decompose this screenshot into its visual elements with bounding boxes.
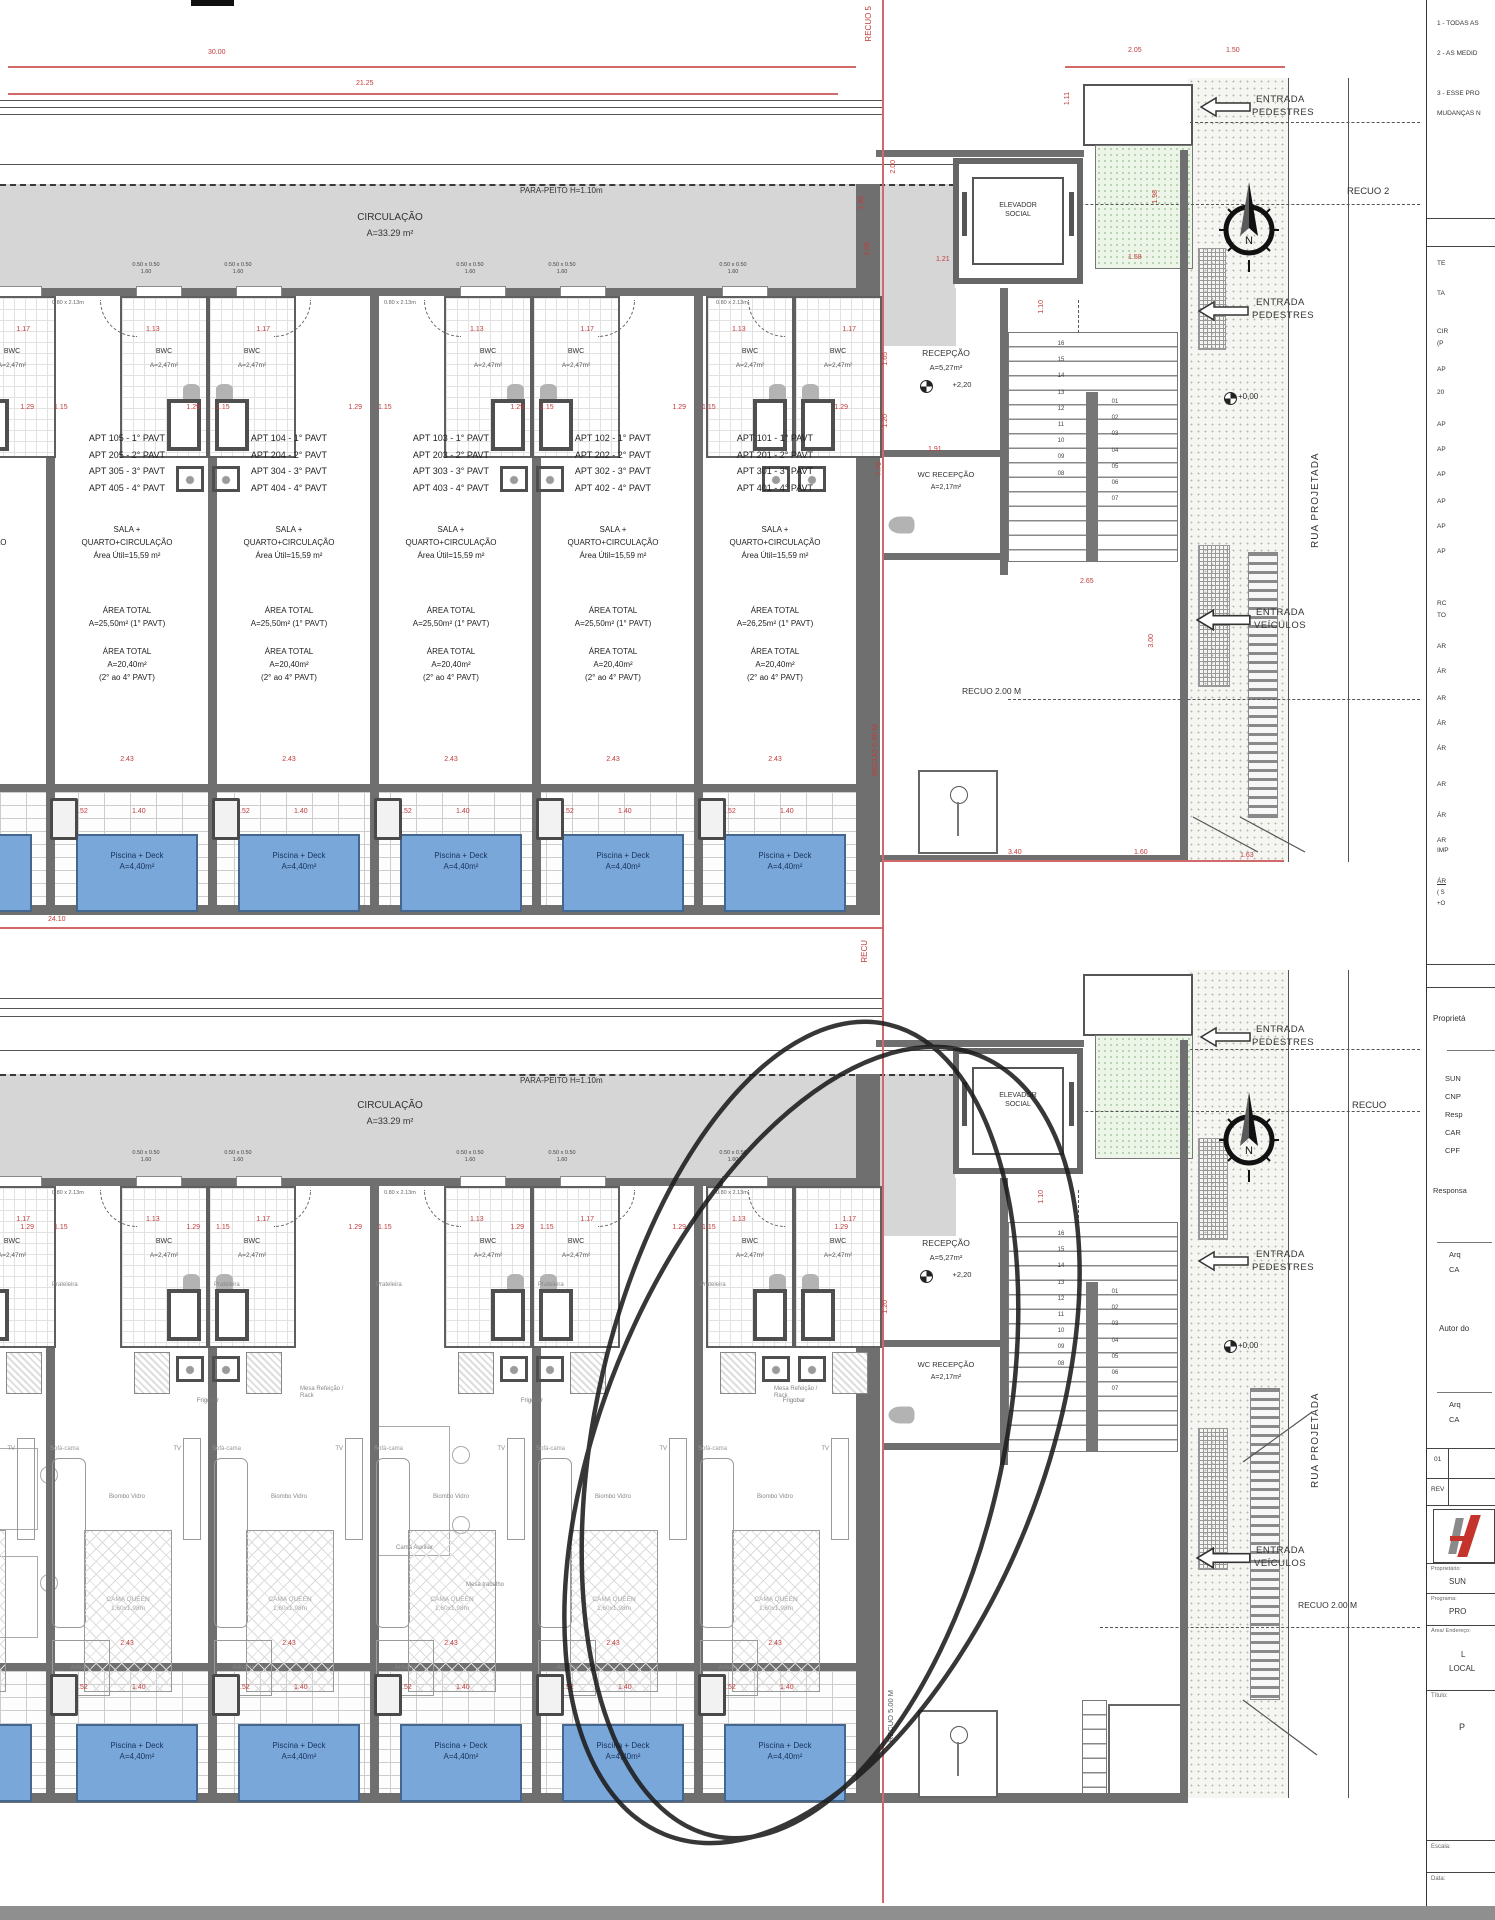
stair-step-number: 07 [1106, 1381, 1124, 1397]
dim-label: 1.11 [1064, 92, 1071, 105]
divider [1427, 1448, 1495, 1449]
reception-level: +2,20 [904, 380, 1020, 389]
dim-label: 3.40 [1008, 849, 1022, 856]
door-dim: 0.80 x 2.13m [716, 1190, 748, 1196]
legend-item: ÁR [1437, 878, 1446, 885]
legend-item: CIR [1437, 328, 1448, 335]
level-marker-icon [1224, 1340, 1237, 1353]
window-sill: 1.60 [442, 1157, 498, 1164]
window-dim: 0.50 x 0.50 1.60 [118, 1150, 174, 1164]
note: 3 - ESSE PRO [1437, 90, 1480, 97]
owner-line: SUN [1445, 1074, 1461, 1083]
legend-item: AR [1437, 643, 1446, 650]
dim-label: 1.98 [1152, 190, 1159, 204]
stair-numbers: 161514131211100908 [1052, 1226, 1070, 1372]
dim-label: 1.20 [882, 1300, 889, 1314]
window-sill: 1.60 [118, 1157, 174, 1164]
window-dim: 0.50 x 0.50 1.60 [705, 262, 761, 276]
vehicle-entrance-label: VEÍCULOS [1254, 620, 1306, 631]
parapet-label: PARA-PEITO H=1.10m [520, 1076, 603, 1085]
stair-step-number: 09 [1052, 449, 1070, 465]
recuo2-label: RECUO 2 [1347, 186, 1389, 197]
stair-step-number: 05 [1106, 1349, 1124, 1365]
owner-line: CPF [1445, 1146, 1460, 1155]
stair-step-number: 14 [1052, 1258, 1070, 1274]
legend-item: TO [1437, 612, 1446, 619]
road-lines [0, 0, 1495, 1920]
divider [1427, 1872, 1495, 1873]
drawing-sheet: 30.00 21.25 2.05 1.50 RECUO 5 RECU PARA-… [0, 0, 1495, 1920]
responsible-label: Responsa [1433, 1186, 1467, 1195]
window-dim: 0.50 x 0.50 1.60 [705, 1150, 761, 1164]
dim-label: 1.63 [1240, 852, 1254, 859]
dining-rack-label: Mesa Refeição / Rack [774, 1386, 826, 1400]
architect-line: Arq [1449, 1400, 1461, 1409]
door-dim: 0.80 x 2.13m [52, 1190, 84, 1196]
dim-label: 24.10 [48, 916, 66, 923]
stair-step-number: 11 [1052, 417, 1070, 433]
window-dim: 0.50 x 0.50 1.60 [534, 262, 590, 276]
reception-label: RECEPÇÃO [888, 1238, 1004, 1248]
legend-item: +O [1437, 901, 1445, 907]
dining-rack-label: Mesa Refeição / Rack [300, 1386, 352, 1400]
dim-label: 1.20 [882, 414, 889, 428]
stair-step-number: 06 [1106, 475, 1124, 491]
legend-item: ( S [1437, 890, 1445, 896]
divider [1437, 1242, 1492, 1243]
stair-step-number: 05 [1106, 459, 1124, 475]
parapet-label: PARA-PEITO H=1.10m [520, 186, 603, 195]
field-label: Data: [1431, 1876, 1445, 1882]
owner-line: CNP [1445, 1092, 1461, 1101]
dim-label: 7.70 [876, 462, 883, 476]
window-size: 0.50 x 0.50 [210, 1150, 266, 1157]
architect-line: CA [1449, 1415, 1459, 1424]
recuo200-label: RECUO 2.00 M [962, 686, 1021, 696]
stair-step-number: 08 [1052, 466, 1070, 482]
street-name: RUA PROJETADA [1310, 1348, 1321, 1488]
street-level: +0,00 [1238, 392, 1258, 401]
stair-step-number: 04 [1106, 443, 1124, 459]
recu-label: RECU [860, 940, 869, 963]
stair-step-number: 07 [1106, 491, 1124, 507]
legend-item: RC [1437, 600, 1446, 607]
dim-label: 1.85 [858, 196, 865, 210]
desk-label: Mesa trabalho [466, 1582, 506, 1589]
dim-label: 3.00 [1148, 634, 1155, 648]
stair-numbers: 01020304050607 [1106, 1284, 1124, 1397]
vehicle-entrance-label: ENTRADA [1256, 1545, 1305, 1556]
owner-label: Proprietá [1433, 1014, 1465, 1023]
architect-line: CA [1449, 1265, 1459, 1274]
window-sill: 1.60 [705, 269, 761, 276]
legend-item: AP [1437, 523, 1446, 530]
stair-step-number: 10 [1052, 433, 1070, 449]
stair-step-number: 03 [1106, 426, 1124, 442]
note: MUDANÇAS N [1437, 110, 1481, 117]
door-dim: 0.80 x 2.13m [716, 300, 748, 306]
circulation-area: A=33.29 m² [330, 228, 450, 238]
wc-label: WC RECEPÇÃO [888, 1360, 1004, 1369]
dim-label: 30.00 [208, 49, 226, 56]
recuo200-label: RECUO 2.00 M [1298, 1600, 1357, 1610]
legend-item: AR [1437, 695, 1446, 702]
north-compass-icon: N [1211, 1088, 1287, 1184]
aux-bed-label: Cama Auxiliar [396, 1545, 436, 1552]
dim-label: 1.58 [1128, 254, 1142, 261]
divider [1448, 1448, 1449, 1505]
divider [1427, 1478, 1495, 1479]
window-size: 0.50 x 0.50 [210, 262, 266, 269]
window-dim: 0.50 x 0.50 1.60 [534, 1150, 590, 1164]
stair-step-number: 14 [1052, 368, 1070, 384]
field-label: Área/ Endereço: [1431, 1628, 1471, 1634]
recuo5-label: RECUO 5 [864, 6, 873, 42]
street-level: +0,00 [1238, 1341, 1258, 1350]
stair-step-number: 01 [1106, 1284, 1124, 1300]
stair-step-number: 15 [1052, 1242, 1070, 1258]
reception-area: A=5,27m² [888, 1253, 1004, 1262]
wc-label: WC RECEPÇÃO [888, 470, 1004, 479]
dim-line [884, 860, 1284, 862]
door-dim: 0.80 x 2.13m [384, 1190, 416, 1196]
north-compass-icon: N [1211, 178, 1287, 274]
entrance-label: PEDESTRES [1252, 310, 1314, 321]
stair-step-number: 15 [1052, 352, 1070, 368]
divider [1447, 1050, 1495, 1051]
dim-line [1065, 66, 1285, 68]
field-label: Escala: [1431, 1844, 1451, 1850]
window-size: 0.50 x 0.50 [118, 1150, 174, 1157]
circulation-label: CIRCULAÇÃO [330, 1100, 450, 1111]
legend-item: AR [1437, 781, 1446, 788]
field-label: Programa: [1431, 1596, 1457, 1602]
legend-item: AR [1437, 837, 1446, 844]
setback-line [882, 0, 884, 1903]
dim-label: 1.91 [928, 446, 942, 453]
legend-item: AP [1437, 421, 1446, 428]
field-value: SUN [1449, 1577, 1466, 1586]
divider [1427, 1690, 1495, 1691]
entrance-label: PEDESTRES [1252, 1037, 1314, 1048]
revision-number: 01 [1434, 1456, 1441, 1463]
circulation-label: CIRCULAÇÃO [330, 212, 450, 223]
level-marker-icon [1224, 392, 1237, 405]
stair-step-number: 16 [1052, 1226, 1070, 1242]
owner-line: Resp [1445, 1110, 1463, 1119]
pedestrian-arrow-icon [1200, 96, 1252, 118]
field-value: P [1459, 1722, 1465, 1732]
field-label: Título: [1431, 1693, 1448, 1699]
dim-label: 2.00 [890, 160, 897, 174]
dim-label: 21.25 [356, 80, 374, 87]
dim-line [8, 66, 856, 68]
legend-item: TE [1437, 260, 1445, 267]
dim-label: 2.65 [1080, 578, 1094, 585]
window-sill: 1.60 [705, 1157, 761, 1164]
legend-item: AP [1437, 446, 1446, 453]
stair-step-number: 04 [1106, 1333, 1124, 1349]
window-size: 0.50 x 0.50 [442, 1150, 498, 1157]
dim-label: 1.65 [882, 352, 889, 366]
desk-background [0, 1906, 1495, 1920]
divider [1427, 246, 1495, 247]
entrance-label: ENTRADA [1256, 94, 1305, 105]
stair-step-number: 10 [1052, 1323, 1070, 1339]
window-dim: 0.50 x 0.50 1.60 [442, 1150, 498, 1164]
architect-line: Arq [1449, 1250, 1461, 1259]
title-block: 1 - TODAS AS 2 - AS MEDID 3 - ESSE PRO M… [1426, 0, 1495, 1906]
window-sill: 1.60 [210, 1157, 266, 1164]
stair-numbers: 01020304050607 [1106, 394, 1124, 507]
legend-item: AP [1437, 366, 1446, 373]
dim-label: 1.21 [936, 256, 950, 263]
note: 2 - AS MEDID [1437, 50, 1477, 57]
window-dim: 0.50 x 0.50 1.60 [210, 1150, 266, 1164]
window-sill: 1.60 [442, 269, 498, 276]
window-sill: 1.60 [118, 269, 174, 276]
legend-item: ÁR [1437, 720, 1446, 727]
entrance-label: PEDESTRES [1252, 1262, 1314, 1273]
door-dim: 0.80 x 2.13m [384, 300, 416, 306]
note: 1 - TODAS AS [1437, 20, 1479, 27]
stair-numbers: 161514131211100908 [1052, 336, 1070, 482]
divider [1427, 1563, 1495, 1564]
vehicle-entrance-label: VEÍCULOS [1254, 1558, 1306, 1569]
recuo500-label: RECUO 5.00 M [886, 1690, 895, 1742]
field-value: LOCAL [1449, 1664, 1475, 1673]
window-size: 0.50 x 0.50 [705, 1150, 761, 1157]
legend-item: ÁR [1437, 668, 1446, 675]
svg-text:N: N [1245, 1145, 1253, 1157]
legend-item: AP [1437, 471, 1446, 478]
street-name: RUA PROJETADA [1310, 408, 1321, 548]
stair-step-number: 13 [1052, 1275, 1070, 1291]
divider [1427, 1505, 1495, 1506]
legend-item: IMP [1437, 847, 1449, 854]
window-dim: 0.50 x 0.50 1.60 [442, 262, 498, 276]
entrance-label: ENTRADA [1256, 297, 1305, 308]
window-size: 0.50 x 0.50 [118, 262, 174, 269]
window-size: 0.50 x 0.50 [442, 262, 498, 269]
stair-step-number: 12 [1052, 1291, 1070, 1307]
recuo-label: RECUO [1352, 1100, 1386, 1111]
stair-step-number: 03 [1106, 1316, 1124, 1332]
revision-label: REV [1431, 1486, 1444, 1493]
dim-label: 1.06 [864, 242, 871, 256]
reception-label: RECEPÇÃO [888, 348, 1004, 358]
circulation-area: A=33.29 m² [330, 1116, 450, 1126]
logo-shape [1450, 1536, 1472, 1541]
window-sill: 1.60 [534, 269, 590, 276]
divider [1427, 218, 1495, 219]
window-size: 0.50 x 0.50 [534, 1150, 590, 1157]
dim-label: 1.60 [1134, 849, 1148, 856]
field-value: PRO [1449, 1607, 1466, 1616]
field-label: Proprietário: [1431, 1566, 1461, 1572]
owner-line: CAR [1445, 1128, 1461, 1137]
door-dim: 0.80 x 2.13m [52, 300, 84, 306]
wc-area: A=2,17m² [888, 1374, 1004, 1381]
vehicle-arrow-icon [1196, 608, 1252, 632]
divider [1427, 964, 1495, 965]
stair-step-number: 11 [1052, 1307, 1070, 1323]
window-size: 0.50 x 0.50 [534, 262, 590, 269]
divider [1437, 1392, 1492, 1393]
stair-step-number: 08 [1052, 1356, 1070, 1372]
divider [1427, 1840, 1495, 1841]
window-size: 0.50 x 0.50 [705, 262, 761, 269]
company-logo [1433, 1509, 1495, 1563]
window-sill: 1.60 [534, 1157, 590, 1164]
pedestrian-arrow-icon [1198, 1250, 1250, 1272]
vehicle-entrance-label: ENTRADA [1256, 607, 1305, 618]
stair-step-number: 12 [1052, 401, 1070, 417]
legend-item: ÁR [1437, 745, 1446, 752]
stair-step-number: 02 [1106, 1300, 1124, 1316]
legend-item: AP [1437, 548, 1446, 555]
window-dim: 0.50 x 0.50 1.60 [118, 262, 174, 276]
entrance-label: ENTRADA [1256, 1024, 1305, 1035]
vehicle-arrow-icon [1196, 1546, 1252, 1570]
window-sill: 1.60 [210, 269, 266, 276]
wc-area: A=2,17m² [888, 484, 1004, 491]
pedestrian-arrow-icon [1200, 1026, 1252, 1048]
legend-item: 20 [1437, 389, 1444, 396]
stair-step-number: 09 [1052, 1339, 1070, 1355]
stair-step-number: 06 [1106, 1365, 1124, 1381]
dim-label: 1.50 [1226, 47, 1240, 54]
legend-item: (P [1437, 340, 1444, 347]
author-label: Autor do [1439, 1324, 1469, 1333]
pedestrian-arrow-icon [1198, 300, 1250, 322]
stair-step-number: 16 [1052, 336, 1070, 352]
dim-label: 1.10 [1038, 1190, 1045, 1204]
legend-item: ÁR [1437, 812, 1446, 819]
stair-step-number: 13 [1052, 385, 1070, 401]
divider [1427, 987, 1495, 988]
legend-item: TA [1437, 290, 1445, 297]
reception-level: +2,20 [904, 1270, 1020, 1279]
stair-step-number: 01 [1106, 394, 1124, 410]
legend-item: AP [1437, 498, 1446, 505]
divider [1427, 1625, 1495, 1626]
window-dim: 0.50 x 0.50 1.60 [210, 262, 266, 276]
dim-label: 2.05 [1128, 47, 1142, 54]
field-value: L [1461, 1650, 1465, 1659]
dim-line [0, 927, 884, 929]
divider [1427, 1593, 1495, 1594]
reception-area: A=5,27m² [888, 363, 1004, 372]
dim-line [8, 93, 838, 95]
svg-text:N: N [1245, 235, 1253, 247]
entrance-label: ENTRADA [1256, 1249, 1305, 1260]
dim-label: 1.10 [1038, 300, 1045, 314]
recuo500-label: RECUO 5.00 M [870, 724, 879, 776]
entrance-label: PEDESTRES [1252, 107, 1314, 118]
stair-step-number: 02 [1106, 410, 1124, 426]
